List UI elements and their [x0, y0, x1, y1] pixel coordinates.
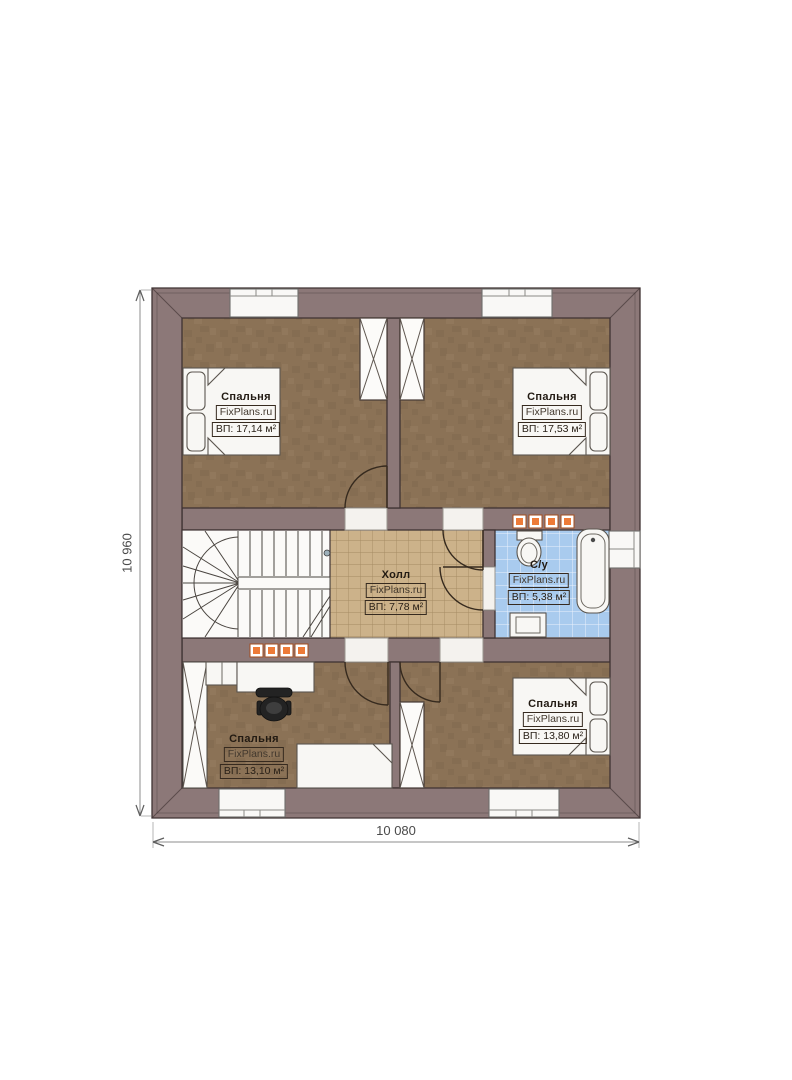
room-label-bedroom-bottom-left: Спальня FixPlans.ru ВП: 13,10 м² [220, 733, 288, 779]
room-name: Спальня [221, 391, 271, 403]
dimension-width-label: 10 080 [376, 823, 416, 838]
cabinet-icon [206, 662, 237, 685]
window-bathroom [609, 531, 640, 568]
room-area: ВП: 17,14 м² [212, 422, 280, 437]
dimension-height-label: 10 960 [120, 533, 135, 573]
room-name: С/у [530, 559, 548, 571]
room-name: Холл [382, 569, 411, 581]
watermark-box: FixPlans.ru [366, 583, 427, 598]
desk-icon [237, 662, 314, 692]
room-area: ВП: 5,38 м² [508, 590, 570, 605]
room-name: Спальня [528, 698, 578, 710]
bathtub-icon [577, 529, 609, 613]
room-area: ВП: 7,78 м² [365, 600, 427, 615]
room-label-bedroom-top-left: Спальня FixPlans.ru ВП: 17,14 м² [212, 391, 280, 437]
window-top-right [482, 289, 552, 317]
staircase [182, 530, 330, 638]
watermark-box: FixPlans.ru [523, 712, 584, 727]
watermark-box: FixPlans.ru [216, 405, 277, 420]
vent-shaft-icon-top-left [360, 318, 387, 400]
room-label-bedroom-top-right: Спальня FixPlans.ru ВП: 17,53 м² [518, 391, 586, 437]
dimension-left [136, 290, 151, 816]
room-name: Спальня [527, 391, 577, 403]
watermark-box: FixPlans.ru [522, 405, 583, 420]
room-name: Спальня [229, 733, 279, 745]
watermark-box: FixPlans.ru [509, 573, 570, 588]
vent-shaft-icon-bottom [400, 702, 424, 788]
room-area: ВП: 17,53 м² [518, 422, 586, 437]
window-bottom-left [219, 789, 285, 817]
floor-plan: Спальня FixPlans.ru ВП: 17,14 м² Спальня… [0, 0, 792, 1080]
room-area: ВП: 13,80 м² [519, 729, 587, 744]
sink-icon [510, 613, 546, 637]
wardrobe-icon [183, 662, 207, 788]
room-label-hall: Холл FixPlans.ru ВП: 7,78 м² [365, 569, 427, 615]
vent-shaft-icon-top-right [400, 318, 424, 400]
window-bottom-right [489, 789, 559, 817]
room-label-bedroom-bottom-right: Спальня FixPlans.ru ВП: 13,80 м² [519, 698, 587, 744]
room-label-bathroom: С/у FixPlans.ru ВП: 5,38 м² [508, 559, 570, 605]
bed-icon-bottom-left [297, 744, 392, 788]
window-top-left [230, 289, 298, 317]
stair-handrail [238, 577, 330, 589]
stair-start-marker [324, 550, 330, 556]
room-area: ВП: 13,10 м² [220, 764, 288, 779]
watermark-box: FixPlans.ru [224, 747, 285, 762]
